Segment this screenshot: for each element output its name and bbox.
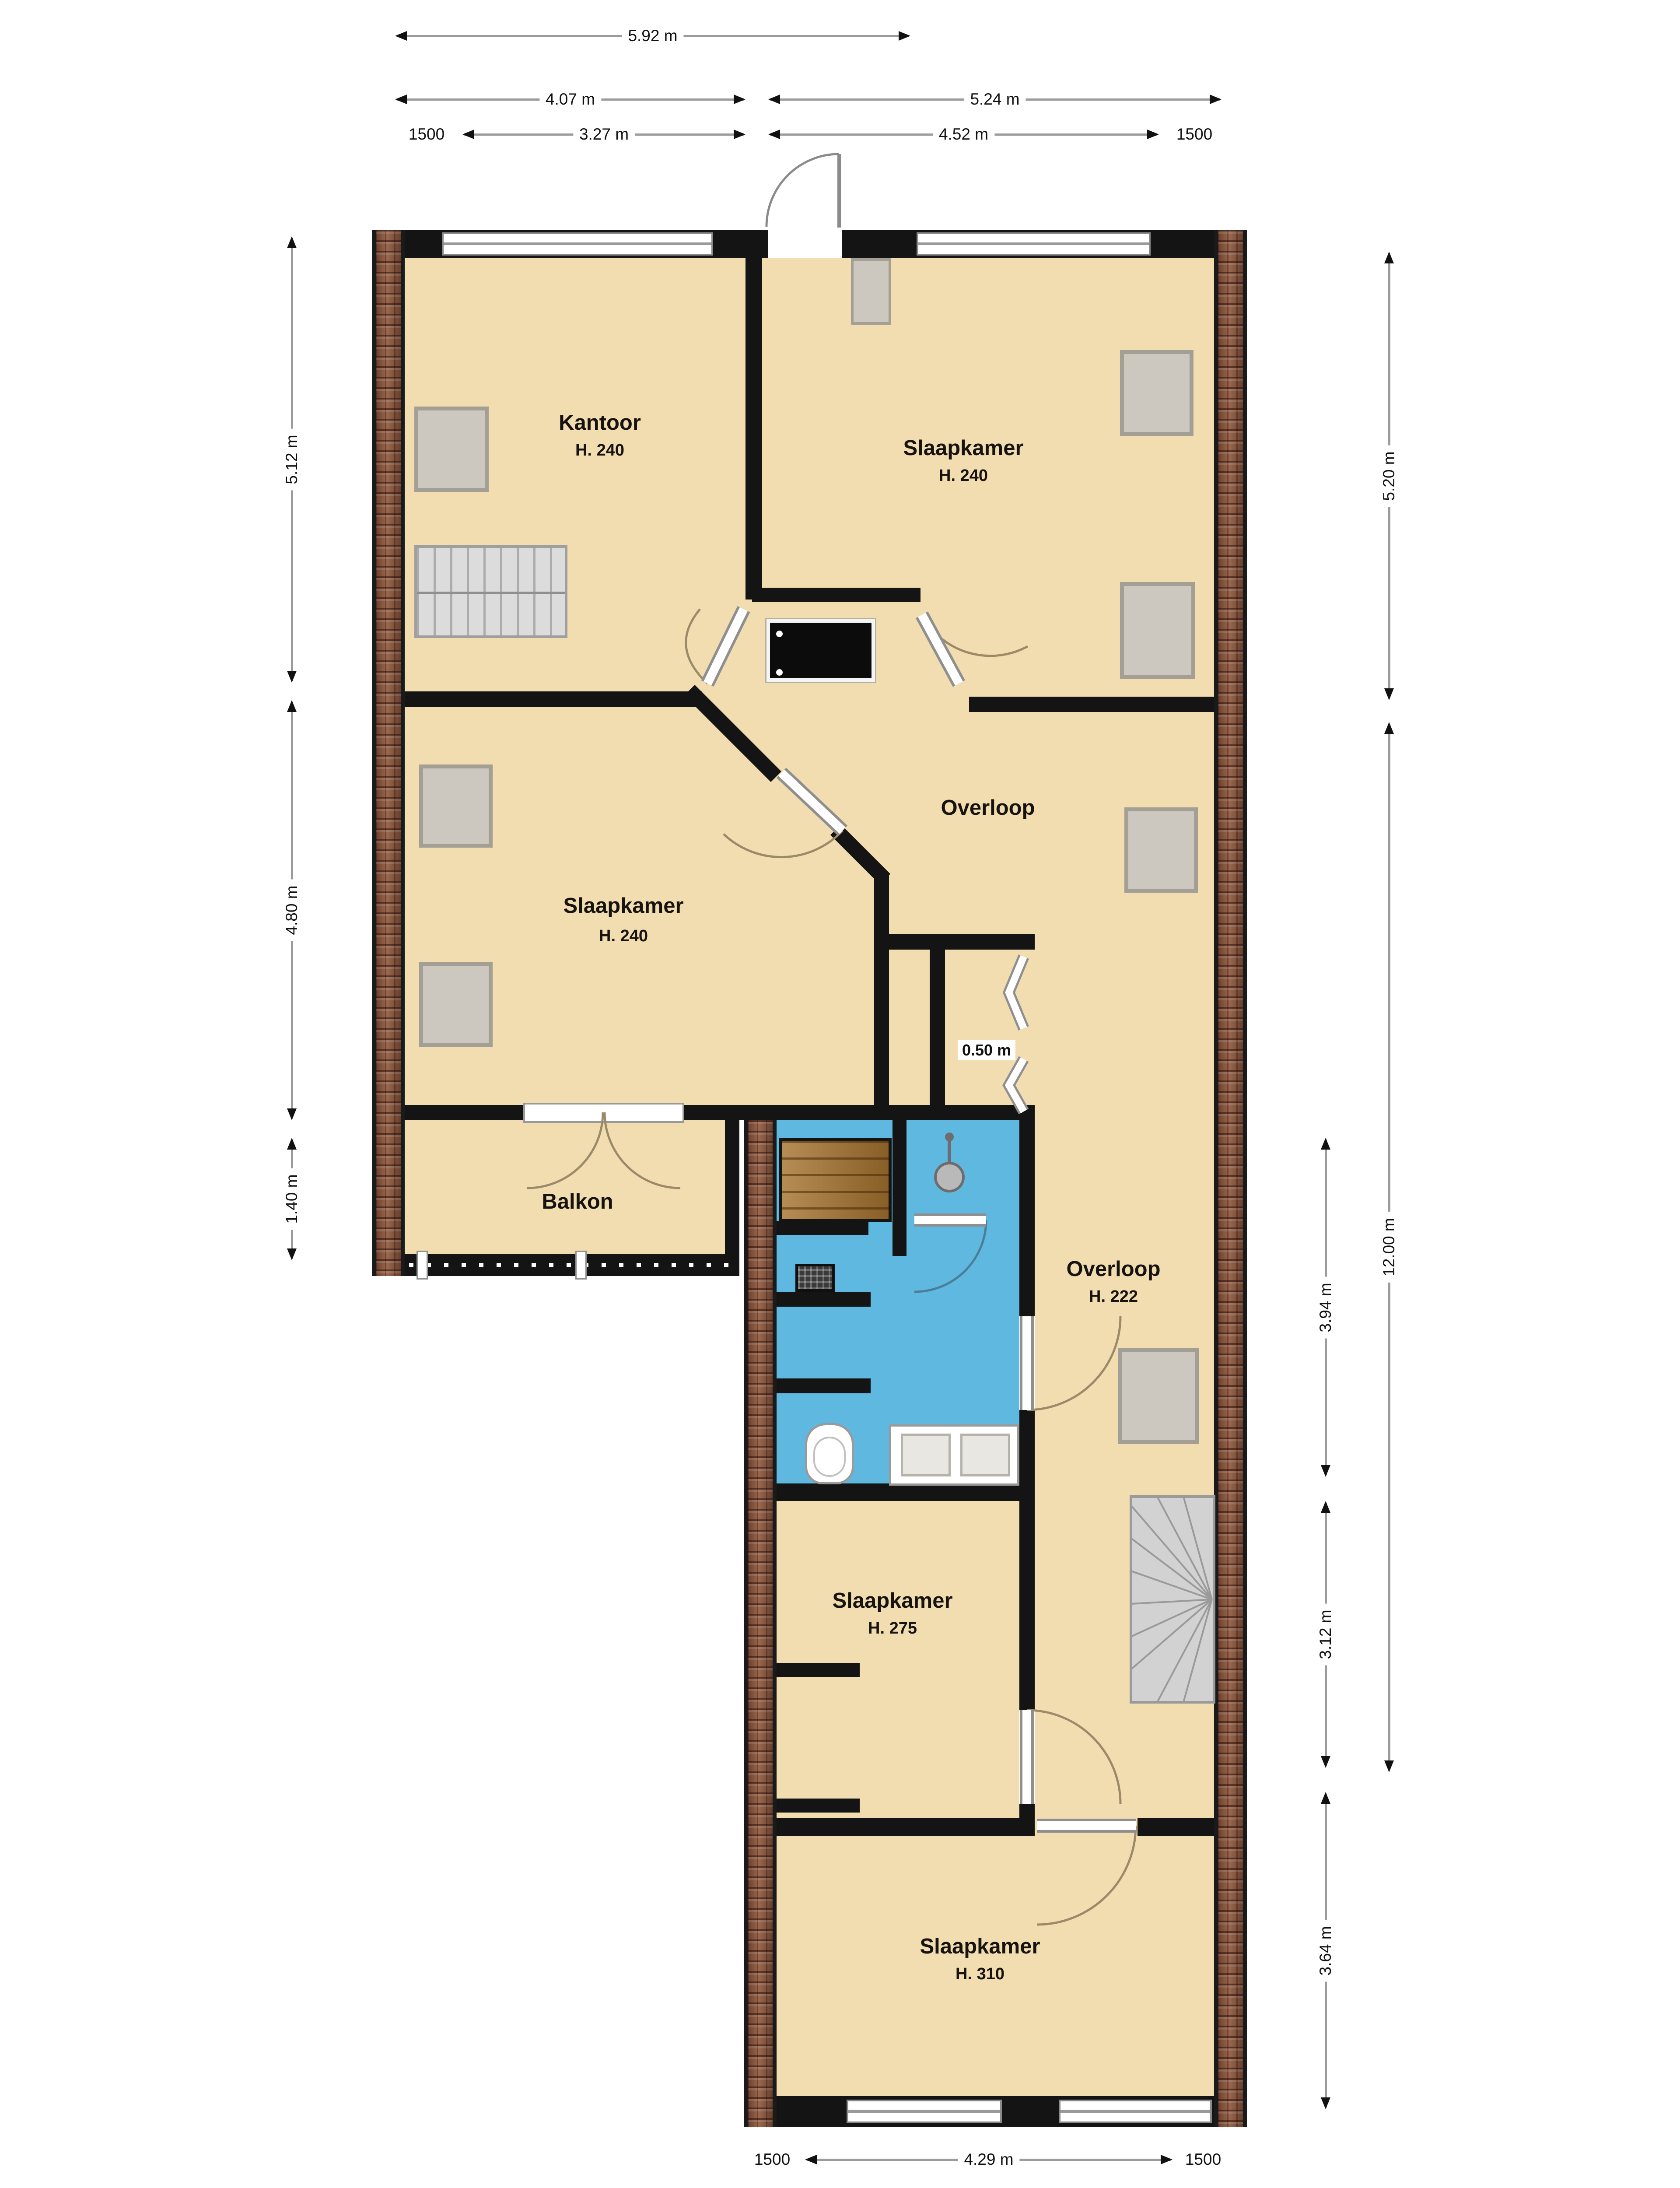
dim-left-middle: 4.80 m <box>282 700 301 1120</box>
label-overloop-lower-height: H. 222 <box>1089 1287 1138 1306</box>
label-slaapkamer-275-height: H. 275 <box>868 1619 917 1638</box>
label-slaapkamer-top-height: H. 240 <box>939 466 988 485</box>
bifold-door-1 <box>1009 957 1024 1028</box>
bifold-door-2 <box>1009 1059 1024 1112</box>
spiral-staircase <box>1131 1497 1214 1702</box>
shower-valve-icon <box>945 1133 954 1141</box>
label-balkon: Balkon <box>542 1189 613 1214</box>
dim-top-inner-left: 3.27 m <box>462 125 745 144</box>
door-and-stair-layer <box>0 0 1680 2188</box>
door-arc-slaapkamer-mid <box>724 831 843 857</box>
label-kantoor: Kantoor <box>559 410 641 435</box>
label-overloop-upper: Overloop <box>941 796 1035 820</box>
sill-top-right: 1500 <box>1176 125 1212 144</box>
dim-top-right: 5.24 m <box>768 90 1221 109</box>
label-slaapkamer-275: Slaapkamer <box>832 1588 952 1613</box>
label-slaapkamer-310: Slaapkamer <box>920 1934 1040 1959</box>
door-arc-bathroom <box>1027 1316 1120 1410</box>
dim-right-outer-total: 12.00 m <box>1379 722 1399 1772</box>
door-arc-balkon-left <box>527 1112 603 1188</box>
label-slaapkamer-310-height: H. 310 <box>955 1965 1004 1984</box>
label-slaapkamer-top: Slaapkamer <box>903 436 1023 460</box>
floorplan-canvas: Kantoor H. 240 Slaapkamer H. 240 Overloo… <box>0 0 1680 2188</box>
dim-right-outer-upper: 5.20 m <box>1379 252 1399 700</box>
dim-top-inner-right: 4.52 m <box>768 125 1159 144</box>
dim-right-inner-lower: 3.64 m <box>1316 1792 1335 2109</box>
label-kantoor-height: H. 240 <box>575 441 624 460</box>
door-arc-shower <box>914 1220 986 1292</box>
dim-right-inner-middle: 3.12 m <box>1316 1501 1335 1768</box>
door-arc-s275 <box>1027 1710 1120 1804</box>
door-arc-kantoor <box>686 609 707 684</box>
label-slaapkamer-mid: Slaapkamer <box>563 894 683 918</box>
dim-bottom-inner: 4.29 m <box>805 2150 1172 2169</box>
door-kantoor <box>707 609 744 684</box>
label-slaapkamer-mid-height: H. 240 <box>599 927 648 946</box>
sill-top-left: 1500 <box>409 125 444 144</box>
door-slaapkamer-mid <box>781 773 843 831</box>
door-arc-balkon-right <box>605 1112 680 1188</box>
door-arc-top-entry <box>766 154 839 227</box>
dim-top-left: 4.07 m <box>395 90 745 109</box>
dim-left-lower: 1.40 m <box>282 1138 301 1260</box>
shower-head-icon <box>935 1163 963 1191</box>
door-arc-s310 <box>1037 1826 1136 1925</box>
door-slaapkamer-top <box>922 615 959 684</box>
dim-top-total: 5.92 m <box>395 26 910 46</box>
sill-bottom-left: 1500 <box>754 2150 790 2169</box>
sill-bottom-right: 1500 <box>1185 2150 1221 2169</box>
label-closet-depth: 0.50 m <box>958 1040 1015 1060</box>
label-overloop-lower: Overloop <box>1066 1257 1160 1281</box>
dim-left-upper: 5.12 m <box>282 236 301 683</box>
dim-right-inner-upper: 3.94 m <box>1316 1138 1335 1477</box>
